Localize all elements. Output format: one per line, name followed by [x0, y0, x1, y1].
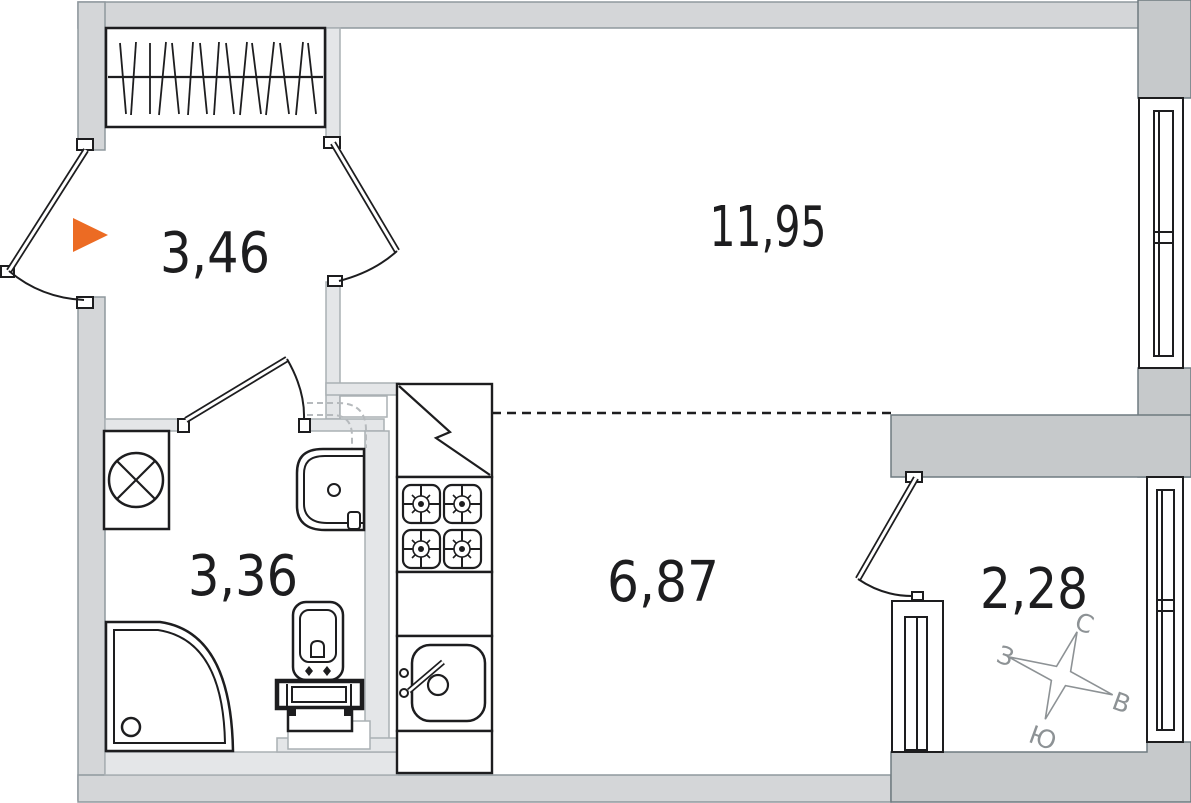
kitchen-sink-symbol [400, 645, 485, 721]
bathroom-sink-icon [297, 449, 364, 530]
compass-south-label: Ю [1025, 720, 1060, 756]
balcony-side-window-icon [1147, 477, 1183, 742]
living-room-door-icon [333, 143, 397, 281]
entry-direction-icon [73, 218, 108, 252]
living-room-window-icon [1139, 98, 1183, 368]
room-area-balcony: 2,28 [980, 557, 1088, 622]
counter-icon [397, 731, 492, 773]
wardrobe-icon [106, 28, 325, 127]
compass-east-label: В [1108, 686, 1134, 719]
shower-icon [106, 622, 233, 751]
room-area-hallway: 3,46 [160, 221, 270, 286]
balcony-kitchen-window-icon [892, 601, 943, 752]
washing-machine-icon [104, 431, 169, 529]
counter-icon [397, 572, 492, 636]
balcony-door-icon [858, 478, 916, 596]
compass-west-label: З [993, 640, 1018, 673]
floor-plan: 3,46 11,95 3,36 6,87 2,28 С В Ю З [0, 0, 1191, 803]
room-area-living-room: 11,95 [710, 195, 827, 260]
room-area-bathroom: 3,36 [188, 544, 298, 609]
compass-star-icon [993, 613, 1129, 738]
bathroom-door-icon [186, 359, 304, 420]
toilet-icon [277, 602, 362, 731]
room-area-kitchen: 6,87 [607, 550, 719, 615]
floor-plan-page: 3,46 11,95 3,36 6,87 2,28 С В Ю З [0, 0, 1191, 803]
